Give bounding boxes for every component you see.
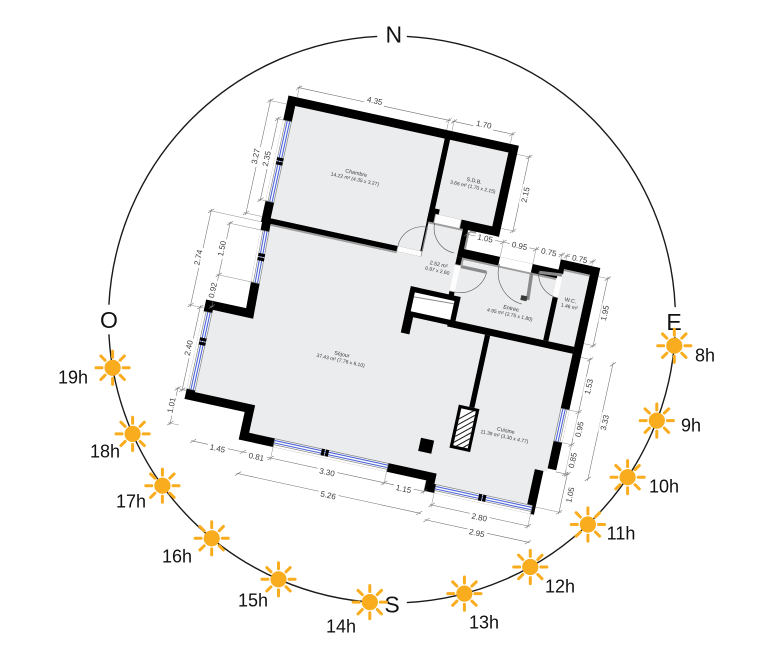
svg-text:19h: 19h bbox=[58, 367, 88, 387]
svg-text:14h: 14h bbox=[326, 616, 356, 636]
svg-text:11h: 11h bbox=[607, 523, 636, 543]
svg-text:17h: 17h bbox=[116, 491, 146, 511]
svg-text:16h: 16h bbox=[162, 546, 192, 566]
svg-text:12h: 12h bbox=[545, 576, 575, 596]
svg-text:15h: 15h bbox=[238, 590, 268, 610]
svg-text:9h: 9h bbox=[681, 415, 701, 435]
svg-text:O: O bbox=[100, 307, 118, 333]
svg-text:N: N bbox=[385, 22, 402, 48]
svg-text:13h: 13h bbox=[469, 612, 499, 632]
svg-text:10h: 10h bbox=[649, 476, 679, 496]
svg-text:S: S bbox=[384, 592, 399, 618]
svg-text:18h: 18h bbox=[90, 441, 120, 461]
svg-text:8h: 8h bbox=[695, 345, 715, 365]
